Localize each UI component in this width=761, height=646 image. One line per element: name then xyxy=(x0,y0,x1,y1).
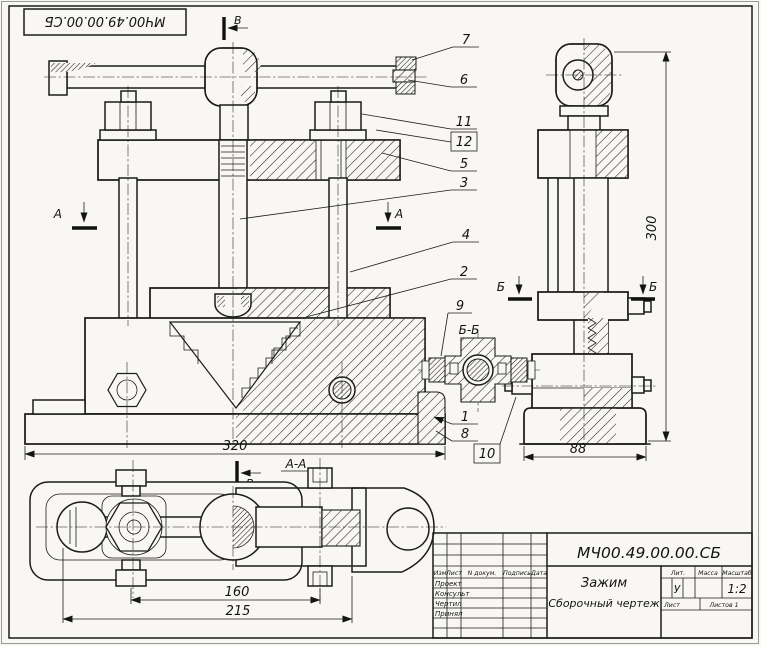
left-stud xyxy=(429,358,445,382)
body-with-prism xyxy=(85,318,425,414)
section-mark-b-left: Б xyxy=(497,276,532,299)
side-view: Б Б 88 300 xyxy=(497,38,671,461)
callout-12: 12 xyxy=(456,135,473,150)
row-konsult: Консульт xyxy=(435,590,470,598)
callout-5: 5 xyxy=(460,157,468,172)
row-prinyal: Принял xyxy=(435,610,463,618)
dim-215-text: 215 xyxy=(226,604,251,619)
scale-value: 1:2 xyxy=(727,582,746,596)
scale-label: Масштаб xyxy=(722,569,752,577)
callout-10: 10 xyxy=(479,447,496,462)
right-stud xyxy=(511,358,527,382)
title-block: МЧ00.49.00.00.СБ Зажим Сборочный чертеж … xyxy=(433,533,752,638)
col-izm: Изм xyxy=(434,570,447,577)
part-title: Зажим xyxy=(581,576,627,591)
side-rack xyxy=(588,318,608,356)
mass-label: Масса xyxy=(698,570,718,577)
callout-8: 8 xyxy=(461,427,469,442)
callout-9: 9 xyxy=(456,299,464,314)
sheets-label: Листов 1 xyxy=(708,602,738,609)
moving-jaw xyxy=(150,288,390,322)
dim-300-text: 300 xyxy=(645,216,660,241)
label-a: А xyxy=(53,207,62,221)
section-mark-a-left: А xyxy=(53,202,97,228)
section-mark-b-right: Б xyxy=(631,276,657,299)
sheet-label: Лист xyxy=(663,602,680,609)
drawing-sheet: 320 В А А xyxy=(0,0,761,646)
stamp-number: МЧ00.49.00.00.СБ xyxy=(45,13,166,28)
callout-4: 4 xyxy=(462,228,470,243)
section-mark-a-right: А xyxy=(376,202,403,228)
label-aa: А-А xyxy=(285,457,307,471)
callout-11: 11 xyxy=(456,115,473,130)
label-b: Б xyxy=(649,280,657,294)
side-rod xyxy=(548,178,558,294)
label-a: А xyxy=(394,207,403,221)
front-view: 320 В А А xyxy=(25,14,445,460)
doc-type: Сборочный чертеж xyxy=(548,597,659,610)
dim-160-text: 160 xyxy=(225,585,250,600)
dim-88-text: 88 xyxy=(570,442,587,457)
callout-3: 3 xyxy=(460,176,468,191)
label-v: В xyxy=(234,14,242,27)
side-traverse xyxy=(538,130,628,178)
callout-2: 2 xyxy=(460,265,468,280)
label-bb: Б-Б xyxy=(459,323,480,337)
traverse xyxy=(98,140,400,180)
col-sign: Подпись xyxy=(503,570,531,577)
handle-right-knob xyxy=(393,57,416,94)
label-b: Б xyxy=(497,280,505,294)
lit-label: Лит. xyxy=(670,570,685,577)
section-mark-v-top: В xyxy=(224,14,248,40)
col-list: Лист xyxy=(445,570,462,577)
col-doc: N докум. xyxy=(468,570,497,577)
row-chertil: Чертил xyxy=(435,600,462,608)
col-date: Дата xyxy=(530,570,547,577)
side-bracket xyxy=(538,292,651,320)
screw-neck xyxy=(220,105,248,141)
callout-7: 7 xyxy=(462,33,471,48)
dim-160: 160 xyxy=(131,585,320,604)
dim-88: 88 xyxy=(524,442,646,461)
side-base xyxy=(520,408,650,444)
dim-320-text: 320 xyxy=(223,439,248,454)
callout-6: 6 xyxy=(460,73,468,88)
corner-stamp: МЧ00.49.00.00.СБ xyxy=(24,9,186,35)
lit-value: У xyxy=(674,584,681,596)
doc-number: МЧ00.49.00.00.СБ xyxy=(577,544,721,562)
hook-hole xyxy=(387,508,429,550)
row-proekt: Проект xyxy=(435,580,463,588)
bottom-view-aa: А-А В xyxy=(30,457,446,623)
callout-1: 1 xyxy=(461,410,469,425)
handle-bar-section xyxy=(467,359,489,381)
base-right-foot xyxy=(418,392,445,444)
